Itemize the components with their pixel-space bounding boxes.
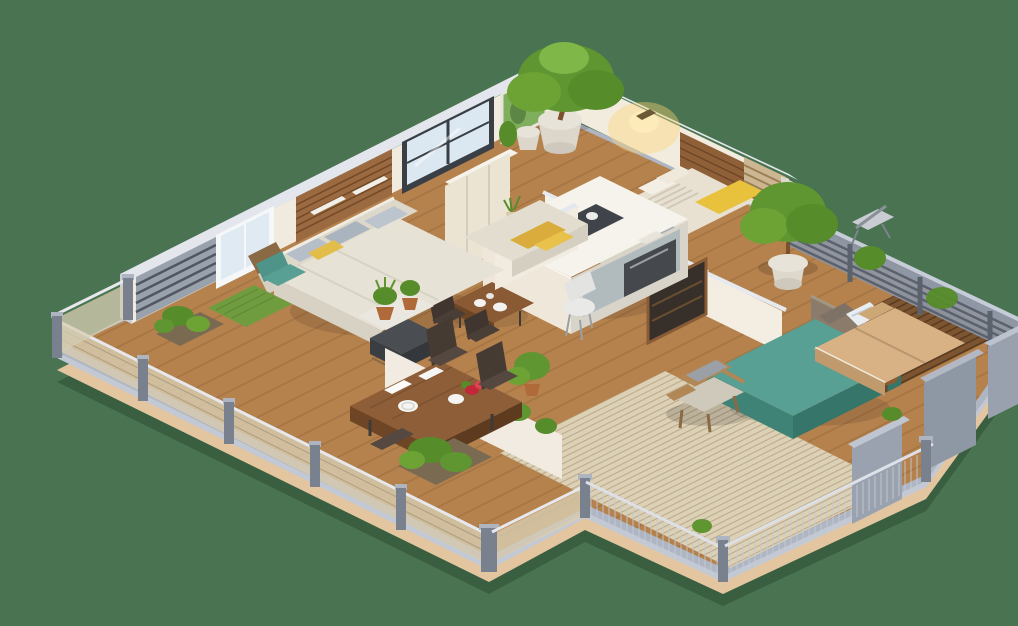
post-l: [52, 316, 62, 358]
bedroom-tree-foliage-3: [786, 204, 838, 244]
floorplan-svg: [40, 16, 1018, 610]
planter-south-green-3: [399, 451, 425, 469]
nook-plate-1: [474, 299, 486, 307]
post-sw-3: [310, 445, 320, 487]
ne-balcony-bush: [926, 287, 958, 309]
bedroom-tree-pot-top: [768, 254, 808, 272]
island-chair-seat: [563, 298, 595, 316]
armchair-leg-1: [680, 410, 682, 428]
patio-tree-foliage-2: [507, 72, 561, 112]
balcony-pot-1-foliage: [373, 287, 397, 305]
deck-grass-tuft-2: [882, 407, 902, 421]
bedroom-bush: [854, 246, 886, 270]
balcony-pot-2-foliage: [400, 280, 420, 296]
nook-plate-2: [493, 303, 507, 312]
bedroom-tree-pot-base: [774, 278, 802, 290]
patio-tree-foliage-4: [539, 42, 589, 74]
patio-tree-foliage-3: [568, 70, 624, 110]
terrace-plate-2: [448, 394, 464, 404]
planter-west-green-2: [186, 316, 210, 332]
bedroom-tree-foliage-2: [740, 208, 788, 244]
post-sw-1: [138, 359, 148, 401]
post-west: [123, 278, 133, 320]
patio-hanging-plant: [499, 121, 517, 147]
post-c: [481, 528, 497, 572]
armchair-leg-2: [708, 414, 710, 432]
post-v: [921, 440, 931, 482]
post-sw-4: [396, 488, 406, 530]
post-sw-2: [224, 402, 234, 444]
patio-pot-big-base: [544, 142, 576, 154]
patio-pot-small-top: [516, 126, 540, 138]
halfwall-plant-2: [535, 418, 557, 434]
apartment-3d-floorplan: [40, 16, 1018, 610]
planter-south-green-2: [440, 452, 472, 472]
deck-grass-tuft-1: [692, 519, 712, 533]
nook-teapot: [486, 293, 494, 299]
island-kettle: [586, 212, 598, 220]
planter-west-green-3: [154, 319, 174, 333]
